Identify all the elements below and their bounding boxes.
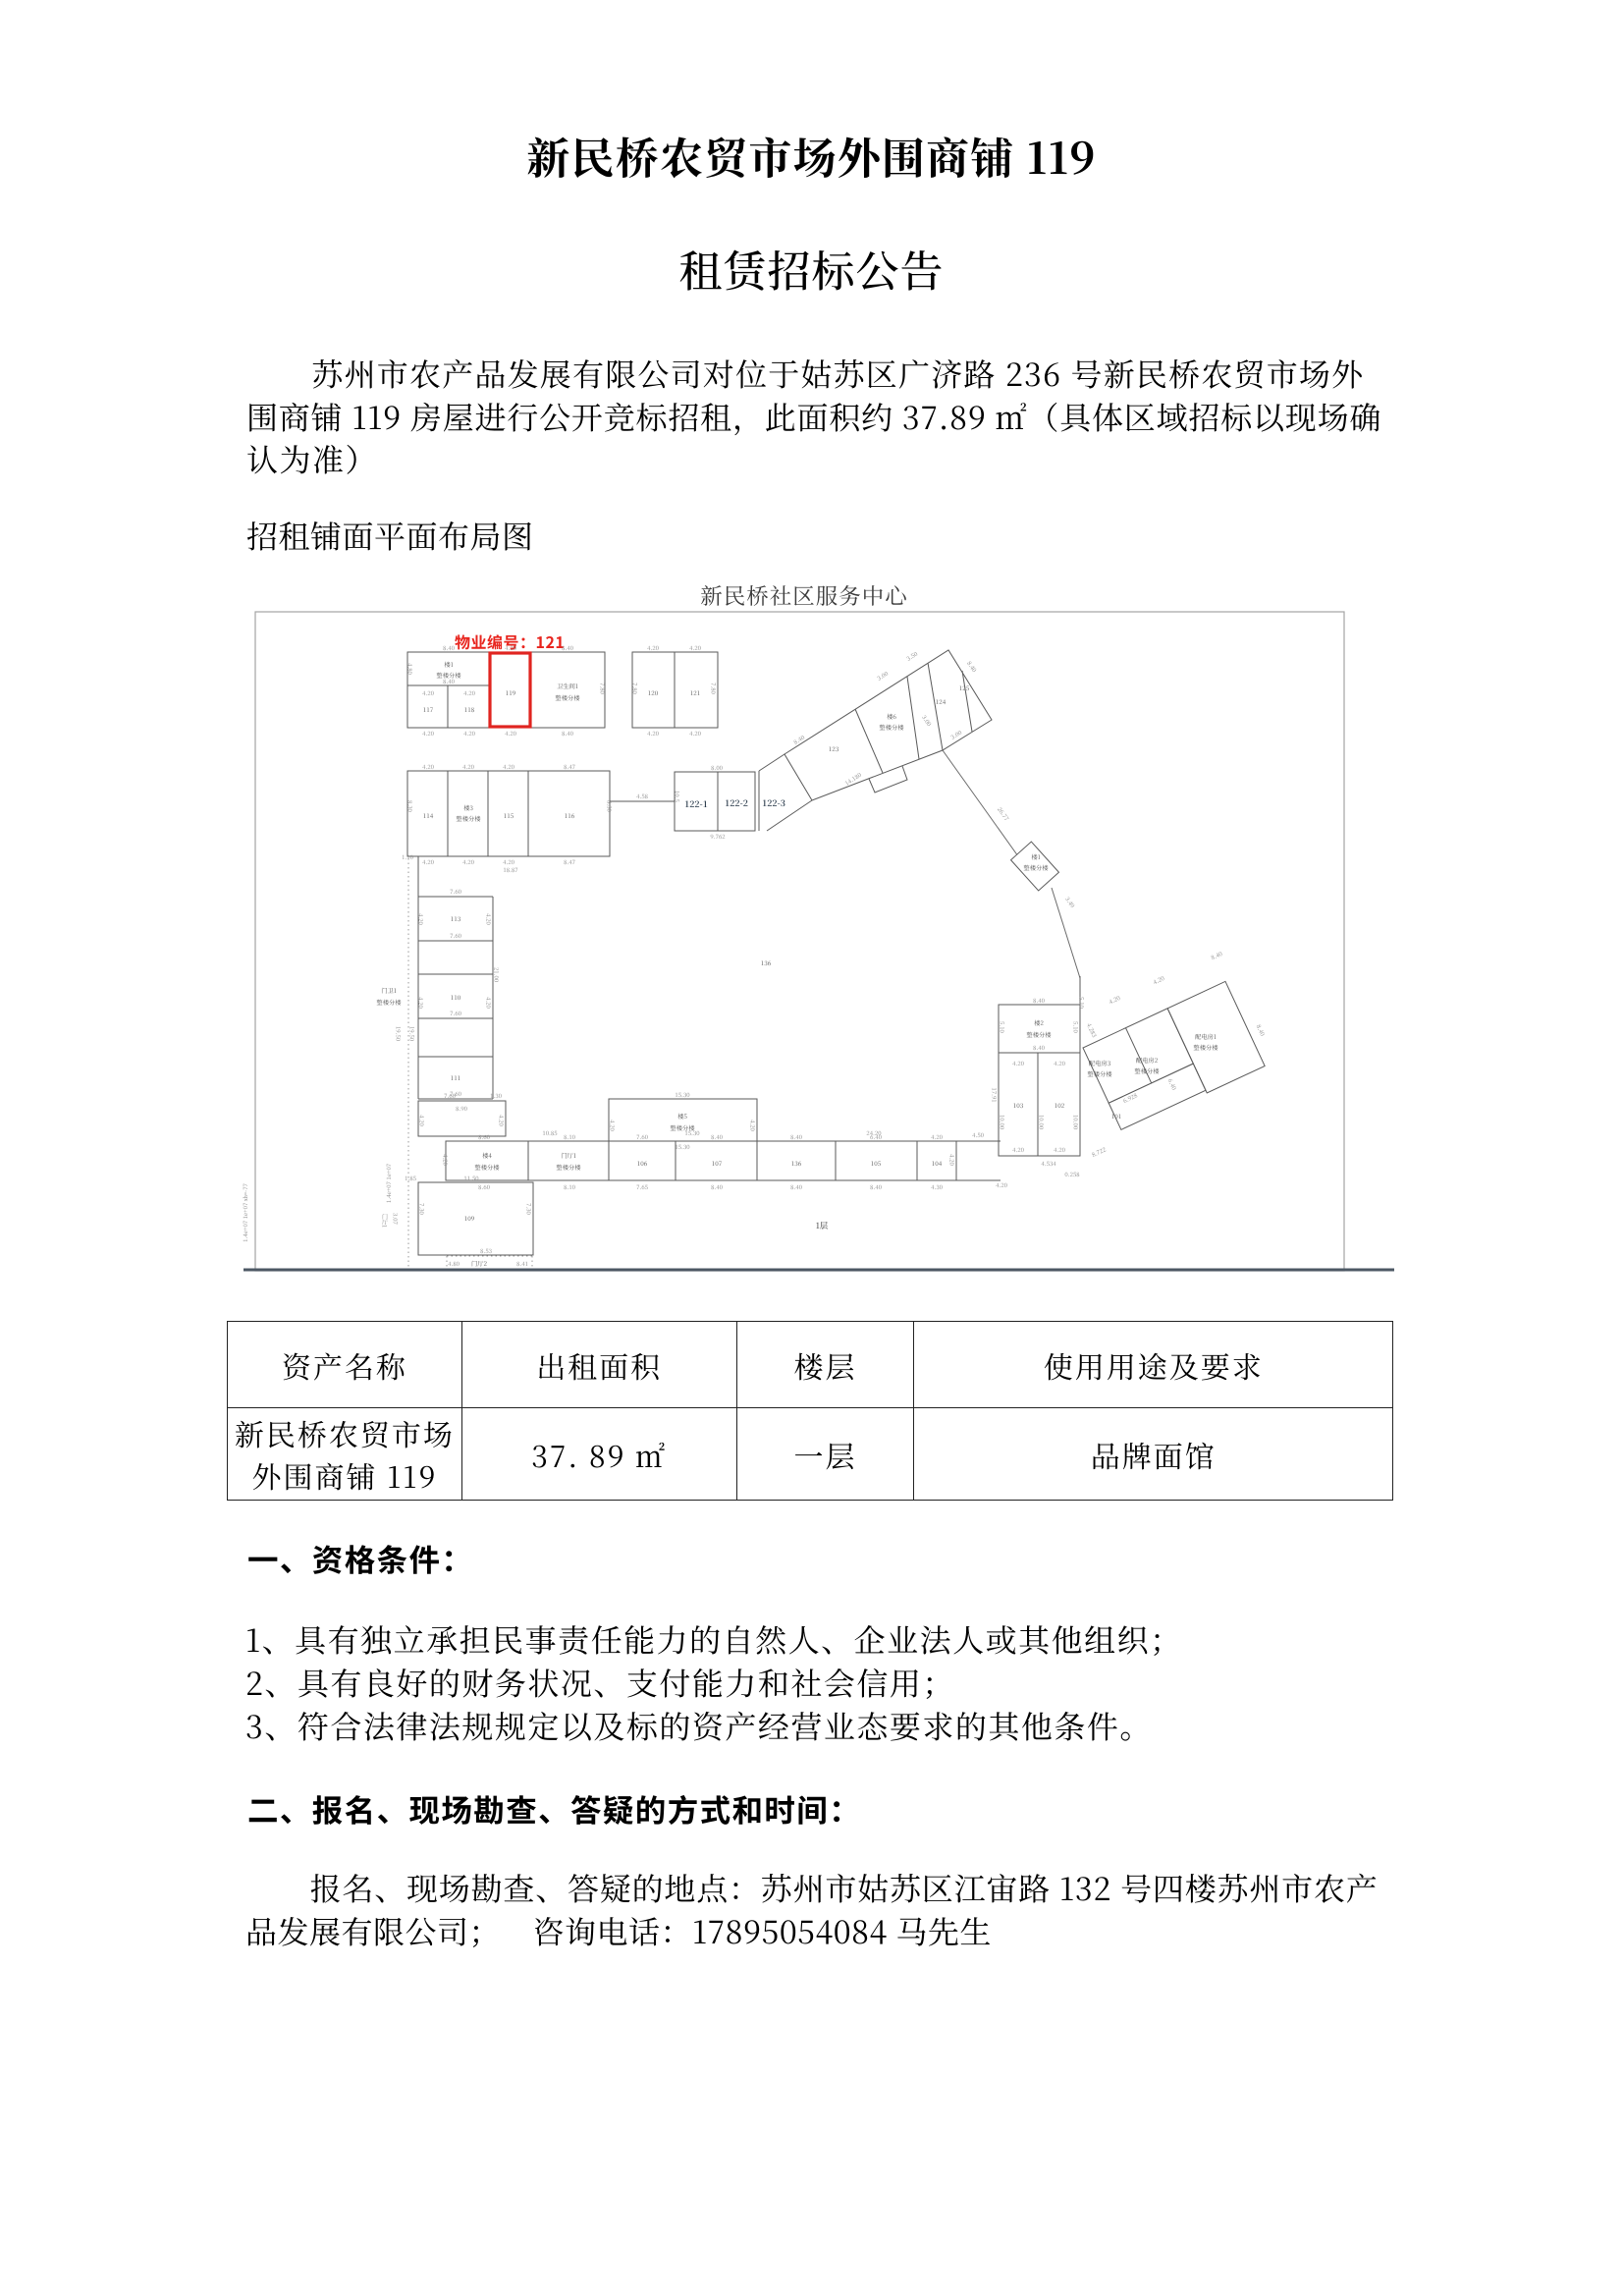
- svg-text:115: 115: [504, 811, 514, 820]
- svg-text:整楼分楼: 整楼分楼: [376, 998, 402, 1007]
- svg-text:4.20: 4.20: [462, 762, 474, 771]
- svg-text:8.40: 8.40: [562, 729, 573, 738]
- svg-text:4.20: 4.20: [647, 643, 659, 652]
- svg-text:4.534: 4.534: [1041, 1159, 1056, 1168]
- svg-text:106: 106: [637, 1159, 648, 1168]
- svg-text:113: 113: [451, 914, 461, 923]
- svg-text:19.50: 19.50: [408, 1026, 417, 1041]
- svg-text:7.60: 7.60: [444, 1091, 456, 1100]
- svg-text:1.30: 1.30: [490, 1091, 502, 1100]
- svg-text:10.5: 10.5: [674, 791, 682, 802]
- svg-text:8.40: 8.40: [1210, 949, 1224, 961]
- svg-text:整楼分楼: 整楼分楼: [1023, 863, 1049, 872]
- svg-text:门卫1: 门卫1: [381, 986, 397, 995]
- svg-text:118: 118: [464, 705, 475, 714]
- svg-text:116: 116: [565, 811, 575, 820]
- svg-text:8.40: 8.40: [1033, 1043, 1045, 1052]
- svg-text:4.20: 4.20: [996, 1180, 1007, 1189]
- svg-text:整楼分楼: 整楼分楼: [1134, 1066, 1160, 1075]
- svg-text:7.80: 7.80: [710, 683, 719, 694]
- svg-text:4.80: 4.80: [448, 1259, 460, 1268]
- svg-text:26.77: 26.77: [996, 805, 1011, 823]
- svg-text:122-3: 122-3: [762, 796, 785, 809]
- svg-text:楼1: 楼1: [1031, 852, 1040, 861]
- svg-text:整楼分楼: 整楼分楼: [556, 1163, 581, 1172]
- svg-text:4.20: 4.20: [1054, 1059, 1065, 1067]
- svg-text:楼6: 楼6: [887, 712, 896, 721]
- svg-text:4.30: 4.30: [931, 1182, 943, 1191]
- svg-text:整楼分楼: 整楼分楼: [555, 693, 580, 702]
- svg-text:8.40: 8.40: [1255, 1023, 1268, 1038]
- svg-text:楼3: 楼3: [463, 803, 473, 812]
- svg-text:整楼分楼: 整楼分楼: [1087, 1069, 1112, 1078]
- svg-text:8.40: 8.40: [711, 1182, 723, 1191]
- svg-text:8.90: 8.90: [456, 1104, 467, 1113]
- svg-text:8.30: 8.30: [406, 800, 415, 812]
- svg-text:102: 102: [1055, 1101, 1065, 1110]
- svg-text:8.40: 8.40: [443, 677, 455, 685]
- svg-text:10.00: 10.00: [1038, 1115, 1047, 1129]
- svg-text:125: 125: [959, 683, 970, 692]
- svg-text:4.20: 4.20: [609, 1120, 618, 1131]
- svg-text:3.49: 3.49: [1063, 895, 1077, 909]
- svg-text:122-1: 122-1: [684, 797, 708, 810]
- svg-text:4.20: 4.20: [647, 729, 659, 738]
- svg-text:124: 124: [936, 697, 947, 706]
- svg-text:4.20: 4.20: [1054, 1145, 1065, 1154]
- svg-text:4.20: 4.20: [422, 762, 434, 771]
- svg-text:7.30: 7.30: [418, 1203, 427, 1215]
- svg-text:10.00: 10.00: [1072, 1115, 1081, 1129]
- svg-text:8.10: 8.10: [564, 1132, 575, 1141]
- svg-text:楼2: 楼2: [1034, 1018, 1044, 1027]
- svg-text:3.00: 3.00: [875, 669, 890, 683]
- svg-text:4.20: 4.20: [462, 857, 474, 866]
- svg-text:1.4e+07 1e+07: 1.4e+07 1e+07: [384, 1164, 393, 1203]
- svg-text:15.30: 15.30: [684, 1128, 699, 1137]
- svg-text:8.10: 8.10: [564, 1182, 575, 1191]
- svg-text:7.65: 7.65: [636, 1182, 648, 1191]
- svg-text:4.20: 4.20: [422, 729, 434, 738]
- svg-text:8.40: 8.40: [711, 1132, 723, 1141]
- svg-text:8.40: 8.40: [870, 1182, 882, 1191]
- svg-text:19.50: 19.50: [395, 1026, 404, 1041]
- svg-text:4.50: 4.50: [972, 1130, 984, 1139]
- svg-text:4.20: 4.20: [1108, 993, 1122, 1006]
- svg-text:4.20: 4.20: [689, 643, 701, 652]
- svg-text:123: 123: [829, 744, 839, 753]
- svg-text:3.00: 3.00: [920, 713, 934, 728]
- svg-text:121: 121: [690, 688, 701, 697]
- svg-text:5.10: 5.10: [999, 1021, 1007, 1033]
- svg-text:楼4: 楼4: [482, 1151, 492, 1160]
- svg-text:104: 104: [932, 1159, 943, 1168]
- svg-text:18.87: 18.87: [503, 865, 517, 874]
- svg-text:1.4e+07 1e+07 xh=-77: 1.4e+07 1e+07 xh=-77: [241, 1183, 249, 1242]
- svg-text:4.20: 4.20: [485, 997, 494, 1009]
- svg-text:7.60: 7.60: [450, 931, 461, 940]
- svg-text:11.50: 11.50: [463, 1174, 478, 1182]
- svg-text:4.20: 4.20: [463, 688, 475, 697]
- svg-text:7.80: 7.80: [631, 683, 640, 694]
- svg-text:8.30: 8.30: [606, 800, 615, 812]
- svg-text:8.47: 8.47: [564, 857, 575, 866]
- svg-text:配电房2: 配电房2: [1136, 1056, 1159, 1065]
- svg-text:107: 107: [712, 1159, 723, 1168]
- svg-text:8.40: 8.40: [790, 1132, 802, 1141]
- svg-text:配电房3: 配电房3: [1089, 1059, 1111, 1067]
- svg-text:1.85: 1.85: [405, 1174, 416, 1182]
- svg-text:8.41: 8.41: [516, 1259, 528, 1268]
- svg-text:111: 111: [451, 1073, 461, 1082]
- svg-text:109: 109: [464, 1214, 475, 1223]
- svg-text:4.80: 4.80: [406, 663, 415, 675]
- svg-text:15.30: 15.30: [675, 1142, 689, 1151]
- svg-text:4.20: 4.20: [463, 729, 475, 738]
- svg-text:0.258: 0.258: [1064, 1170, 1079, 1178]
- svg-text:8.53: 8.53: [480, 1246, 492, 1255]
- svg-text:117: 117: [423, 705, 434, 714]
- svg-text:119: 119: [506, 688, 516, 697]
- svg-text:5.10: 5.10: [1078, 997, 1087, 1009]
- svg-text:4.20: 4.20: [442, 1154, 451, 1166]
- svg-text:4.20: 4.20: [1012, 1059, 1024, 1067]
- svg-text:17.91: 17.91: [991, 1087, 1000, 1102]
- svg-text:4.20: 4.20: [498, 1115, 507, 1126]
- svg-text:8.60: 8.60: [478, 1132, 490, 1141]
- svg-text:8.40: 8.40: [1033, 996, 1045, 1005]
- svg-text:4.20: 4.20: [485, 913, 494, 925]
- svg-text:4.20: 4.20: [505, 643, 516, 652]
- svg-text:新民桥社区服务中心: 新民桥社区服务中心: [700, 579, 908, 611]
- svg-text:8.40: 8.40: [965, 659, 979, 674]
- svg-text:9.762: 9.762: [710, 832, 726, 841]
- svg-text:5.10: 5.10: [1072, 1021, 1081, 1033]
- svg-text:7.60: 7.60: [450, 1009, 461, 1017]
- svg-text:103: 103: [1013, 1101, 1024, 1110]
- svg-text:8.722: 8.722: [1090, 1144, 1108, 1159]
- svg-text:4.20: 4.20: [948, 1154, 957, 1166]
- svg-text:4.20: 4.20: [417, 913, 426, 925]
- svg-text:整楼分楼: 整楼分楼: [879, 723, 904, 732]
- svg-text:3.50: 3.50: [904, 649, 919, 663]
- svg-text:4.20: 4.20: [422, 857, 434, 866]
- svg-text:4.20: 4.20: [505, 729, 516, 738]
- svg-text:15.30: 15.30: [675, 1090, 689, 1099]
- svg-text:门厅1: 门厅1: [381, 1213, 390, 1228]
- svg-text:楼5: 楼5: [677, 1112, 687, 1121]
- svg-text:4.20: 4.20: [689, 729, 701, 738]
- svg-text:4.20: 4.20: [422, 688, 434, 697]
- svg-text:整楼分楼: 整楼分楼: [456, 814, 481, 823]
- svg-text:7.60: 7.60: [450, 887, 461, 896]
- svg-text:4.20: 4.20: [503, 762, 514, 771]
- svg-text:24.20: 24.20: [866, 1128, 881, 1137]
- svg-text:整楼分楼: 整楼分楼: [1026, 1030, 1052, 1039]
- svg-text:4.58: 4.58: [636, 792, 648, 800]
- svg-text:4.283: 4.283: [1085, 1021, 1100, 1039]
- svg-text:7.30: 7.30: [525, 1203, 534, 1215]
- svg-text:8.40: 8.40: [562, 643, 573, 652]
- svg-text:门厅1: 门厅1: [561, 1151, 576, 1160]
- svg-text:8.00: 8.00: [711, 763, 723, 772]
- svg-text:整楼分楼: 整楼分楼: [1193, 1043, 1218, 1052]
- svg-text:7.80: 7.80: [599, 683, 608, 694]
- svg-text:1层: 1层: [816, 1220, 829, 1231]
- svg-text:4.20: 4.20: [1012, 1145, 1024, 1154]
- svg-text:114: 114: [423, 811, 434, 820]
- svg-text:整楼分楼: 整楼分楼: [474, 1163, 500, 1172]
- svg-text:136: 136: [761, 958, 772, 967]
- svg-text:7.60: 7.60: [636, 1132, 648, 1141]
- svg-text:6.40: 6.40: [1166, 1077, 1179, 1092]
- svg-text:配电房1: 配电房1: [1195, 1032, 1217, 1041]
- svg-text:120: 120: [648, 688, 659, 697]
- svg-text:卫生间1: 卫生间1: [557, 682, 578, 690]
- svg-text:4.20: 4.20: [417, 997, 426, 1009]
- svg-text:8.40: 8.40: [791, 733, 806, 746]
- svg-text:8.60: 8.60: [478, 1182, 490, 1191]
- svg-text:21.00: 21.00: [493, 967, 502, 982]
- svg-text:101: 101: [1111, 1112, 1122, 1121]
- svg-text:8.47: 8.47: [564, 762, 575, 771]
- svg-text:1.10: 1.10: [402, 852, 413, 861]
- svg-text:8.40: 8.40: [443, 643, 455, 652]
- svg-text:4.20: 4.20: [931, 1132, 943, 1141]
- svg-text:4.20: 4.20: [418, 1115, 427, 1126]
- svg-text:门厅2: 门厅2: [471, 1259, 488, 1268]
- svg-text:10.00: 10.00: [999, 1115, 1007, 1129]
- svg-text:105: 105: [871, 1159, 882, 1168]
- svg-text:6.928: 6.928: [1121, 1090, 1139, 1105]
- svg-text:3.07: 3.07: [392, 1213, 401, 1225]
- svg-text:136: 136: [791, 1159, 802, 1168]
- svg-text:10.85: 10.85: [542, 1128, 557, 1137]
- svg-text:4.20: 4.20: [749, 1120, 758, 1131]
- svg-text:楼1: 楼1: [444, 660, 453, 669]
- svg-text:4.20: 4.20: [1152, 973, 1166, 986]
- svg-text:122-2: 122-2: [725, 796, 748, 809]
- svg-text:110: 110: [451, 993, 461, 1002]
- svg-text:8.40: 8.40: [790, 1182, 802, 1191]
